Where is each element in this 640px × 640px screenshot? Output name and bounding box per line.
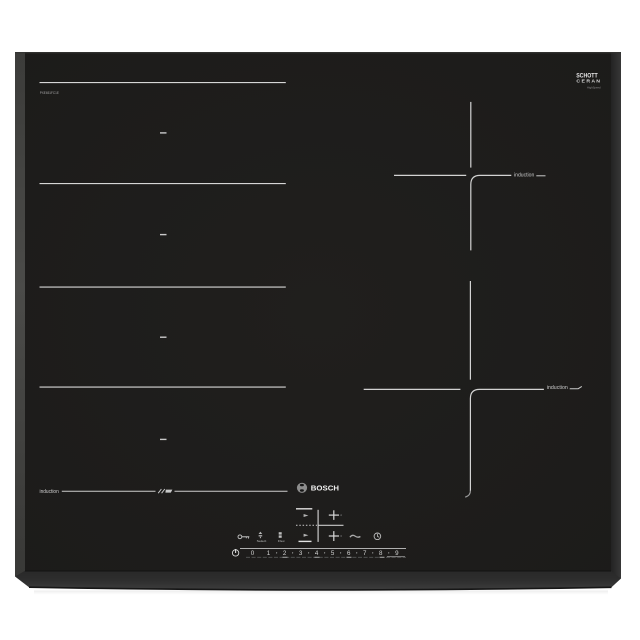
svg-text:2: 2 [283,550,287,557]
svg-text:6: 6 [347,550,351,557]
svg-text:C E R A N: C E R A N [576,79,600,84]
svg-text:1: 1 [267,550,271,557]
svg-text:5: 5 [331,550,335,557]
svg-text:8: 8 [379,550,383,557]
svg-text:HighSpeed: HighSpeed [587,86,601,90]
svg-text:4: 4 [315,550,319,557]
svg-text:0: 0 [251,550,255,557]
svg-text:7: 7 [363,550,367,557]
svg-text:BOSCH: BOSCH [311,484,339,493]
svg-text:induction: induction [40,489,59,495]
svg-text:Select: Select [257,539,267,543]
svg-text:induction: induction [514,172,534,178]
svg-text:3: 3 [299,550,303,557]
svg-text:PXE651FC1E: PXE651FC1E [40,91,60,95]
svg-text:Flex: Flex [278,539,286,543]
svg-text:induction: induction [547,385,568,391]
